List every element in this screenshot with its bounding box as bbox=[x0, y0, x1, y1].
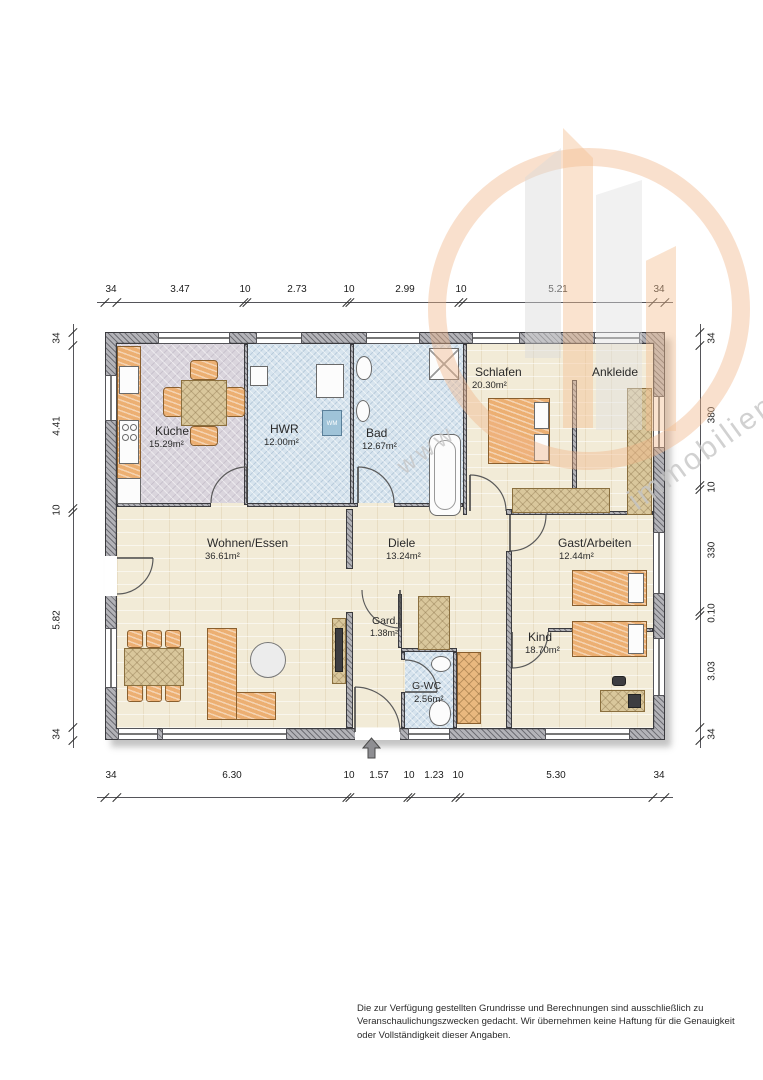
room-area-kueche: 15.29m² bbox=[149, 439, 184, 450]
wall-kueche-hwr bbox=[244, 344, 248, 505]
dim-label: 34 bbox=[653, 770, 664, 781]
chair bbox=[127, 684, 143, 702]
bathtub-basin bbox=[434, 440, 456, 510]
dim-label: 380 bbox=[707, 407, 718, 424]
dim-line-top bbox=[97, 302, 673, 303]
dim-label: 0.10 bbox=[707, 603, 718, 622]
desk-chair bbox=[612, 676, 626, 686]
wc-sink bbox=[431, 656, 451, 672]
wall-gard-left bbox=[398, 594, 402, 648]
dim-line-right bbox=[700, 324, 701, 748]
chair bbox=[165, 630, 181, 648]
kitchen-table bbox=[181, 380, 227, 426]
pillow bbox=[628, 573, 644, 603]
room-label-diele: Diele bbox=[388, 536, 415, 550]
dim-label: 1.57 bbox=[369, 770, 388, 781]
room-label-kueche: Küche bbox=[155, 424, 189, 438]
room-label-gast: Gast/Arbeiten bbox=[558, 536, 631, 550]
dim-label: 3.47 bbox=[170, 284, 189, 295]
window bbox=[408, 728, 450, 740]
chair bbox=[127, 630, 143, 648]
sofa bbox=[207, 628, 237, 720]
wardrobe bbox=[627, 388, 652, 515]
dim-label: 10 bbox=[52, 504, 63, 515]
dim-label: 10 bbox=[343, 770, 354, 781]
window bbox=[118, 728, 158, 740]
dim-label: 34 bbox=[707, 728, 718, 739]
dim-label: 10 bbox=[343, 284, 354, 295]
window bbox=[653, 638, 665, 696]
room-label-gwc: G-WC bbox=[412, 680, 441, 692]
chair bbox=[146, 684, 162, 702]
wall-bad-schlafen bbox=[463, 344, 467, 515]
dim-label: 10 bbox=[452, 770, 463, 781]
stove-burner bbox=[130, 424, 137, 431]
toilet bbox=[356, 356, 372, 380]
dining-table bbox=[124, 648, 184, 686]
computer bbox=[628, 694, 641, 708]
window bbox=[594, 332, 640, 344]
dim-label: 5.82 bbox=[52, 610, 63, 629]
pillow bbox=[534, 434, 549, 461]
watermark-building-gray bbox=[525, 148, 561, 358]
chair bbox=[225, 387, 245, 417]
wall-hwr-bad bbox=[350, 344, 354, 505]
window bbox=[256, 332, 302, 344]
dim-label: 2.73 bbox=[287, 284, 306, 295]
dim-label: 34 bbox=[105, 770, 116, 781]
dim-label: 1.23 bbox=[424, 770, 443, 781]
room-area-diele: 13.24m² bbox=[386, 551, 421, 562]
dim-label: 34 bbox=[105, 284, 116, 295]
room-area-bad: 12.67m² bbox=[362, 441, 397, 452]
coat-closet bbox=[418, 596, 450, 650]
entrance-opening bbox=[355, 728, 400, 740]
door-opening bbox=[105, 556, 117, 596]
pillow bbox=[534, 402, 549, 429]
dim-label: 34 bbox=[52, 728, 63, 739]
floor-plan-page: 34 3.47 10 2.73 10 2.99 10 5.21 34 34 6.… bbox=[0, 0, 763, 1080]
window bbox=[105, 375, 117, 421]
wall-wohnen-diele-stub-2 bbox=[346, 612, 353, 728]
dim-label: 34 bbox=[707, 332, 718, 343]
disclaimer-text: Die zur Verfügung gestellten Grundrisse … bbox=[357, 1002, 752, 1042]
hall-wardrobe bbox=[457, 652, 481, 724]
room-area-schlafen: 20.30m² bbox=[472, 380, 507, 391]
entrance-arrow-icon bbox=[363, 738, 380, 758]
wall-band-left-2 bbox=[247, 503, 358, 507]
fridge bbox=[117, 478, 141, 504]
window bbox=[653, 532, 665, 594]
dim-label: 5.30 bbox=[546, 770, 565, 781]
wall-diele-gast bbox=[506, 551, 512, 728]
chair bbox=[163, 387, 183, 417]
dim-line-bottom bbox=[97, 797, 673, 798]
dim-label: 34 bbox=[52, 332, 63, 343]
window bbox=[653, 396, 665, 448]
window bbox=[472, 332, 520, 344]
chair bbox=[165, 684, 181, 702]
chair bbox=[190, 426, 218, 446]
wall-gwc-left-2 bbox=[401, 692, 405, 728]
utility-sink bbox=[250, 366, 268, 386]
dim-label: 10 bbox=[239, 284, 250, 295]
room-label-wohnen: Wohnen/Essen bbox=[207, 536, 288, 550]
dim-label: 5.21 bbox=[548, 284, 567, 295]
sofa bbox=[236, 692, 276, 720]
room-label-hwr: HWR bbox=[270, 422, 299, 436]
room-label-ankleide: Ankleide bbox=[592, 365, 638, 379]
dryer bbox=[316, 364, 344, 398]
dim-label: 34 bbox=[653, 284, 664, 295]
window bbox=[162, 728, 287, 740]
room-label-schlafen: Schlafen bbox=[475, 365, 522, 379]
stove-burner bbox=[122, 434, 129, 441]
room-label-bad: Bad bbox=[366, 426, 387, 440]
window bbox=[105, 628, 117, 688]
window bbox=[366, 332, 420, 344]
room-label-gard: Gard. bbox=[372, 615, 398, 627]
kitchen-sink bbox=[119, 366, 139, 394]
room-area-gast: 12.44m² bbox=[559, 551, 594, 562]
shower bbox=[429, 348, 459, 380]
bathroom-sink bbox=[356, 400, 370, 422]
dim-label: 6.30 bbox=[222, 770, 241, 781]
dim-label: 3.03 bbox=[707, 661, 718, 680]
wall-wohnen-diele-stub-1 bbox=[346, 509, 353, 569]
coffee-table bbox=[250, 642, 286, 678]
dim-label: 330 bbox=[707, 542, 718, 559]
dim-label: 10 bbox=[403, 770, 414, 781]
wardrobe bbox=[512, 488, 610, 513]
room-label-kind: Kind bbox=[528, 630, 552, 644]
dim-line-left bbox=[73, 324, 74, 748]
room-area-gard: 1.38m² bbox=[370, 628, 398, 638]
chair bbox=[146, 630, 162, 648]
window bbox=[158, 332, 230, 344]
washing-machine: WM bbox=[322, 410, 342, 436]
stove-burner bbox=[122, 424, 129, 431]
wall-gwc-left-1 bbox=[401, 652, 405, 660]
room-area-wohnen: 36.61m² bbox=[205, 551, 240, 562]
window bbox=[545, 728, 630, 740]
pillow bbox=[628, 624, 644, 654]
dim-label: 4.41 bbox=[52, 416, 63, 435]
room-area-kind: 18.70m² bbox=[525, 645, 560, 656]
stove-burner bbox=[130, 434, 137, 441]
tv bbox=[335, 628, 343, 672]
room-area-gwc: 2.56m² bbox=[414, 694, 444, 705]
room-area-hwr: 12.00m² bbox=[264, 437, 299, 448]
dim-label: 10 bbox=[707, 481, 718, 492]
dim-label: 2.99 bbox=[395, 284, 414, 295]
dim-label: 10 bbox=[455, 284, 466, 295]
chair bbox=[190, 360, 218, 380]
